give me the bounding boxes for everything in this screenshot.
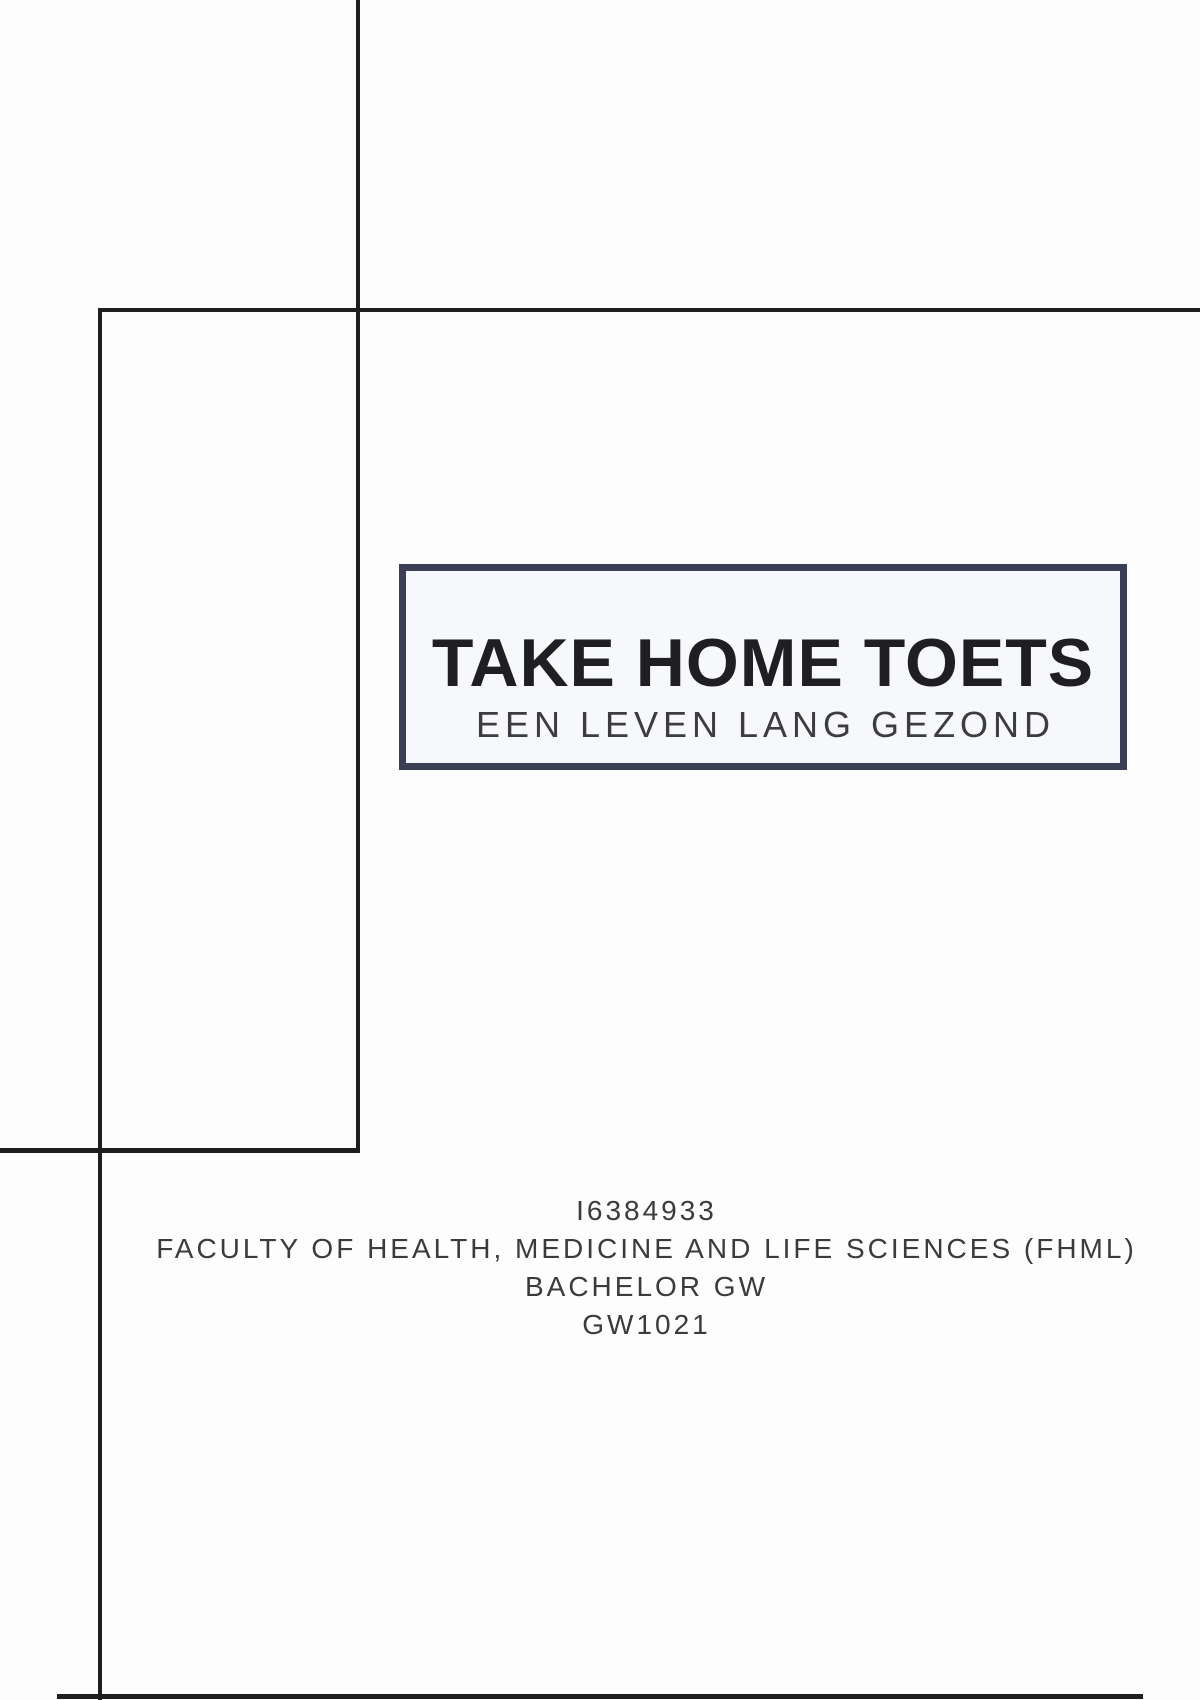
- lower-horizontal-rule: [0, 1148, 360, 1153]
- program-name: BACHELOR GW: [90, 1268, 1200, 1306]
- title-box: TAKE HOME TOETS EEN LEVEN LANG GEZOND: [399, 564, 1127, 770]
- info-block: I6384933 FACULTY OF HEALTH, MEDICINE AND…: [90, 1192, 1200, 1344]
- upper-horizontal-rule: [98, 308, 1200, 312]
- course-code: GW1021: [90, 1306, 1200, 1344]
- student-id: I6384933: [90, 1192, 1200, 1230]
- document-subtitle: EEN LEVEN LANG GEZOND: [471, 707, 1055, 743]
- left-vertical-rule: [98, 308, 102, 1700]
- top-vertical-rule: [356, 0, 360, 1152]
- bottom-bar-rule: [57, 1694, 1143, 1699]
- document-title: TAKE HOME TOETS: [432, 629, 1094, 697]
- faculty-name: FACULTY OF HEALTH, MEDICINE AND LIFE SCI…: [90, 1230, 1200, 1268]
